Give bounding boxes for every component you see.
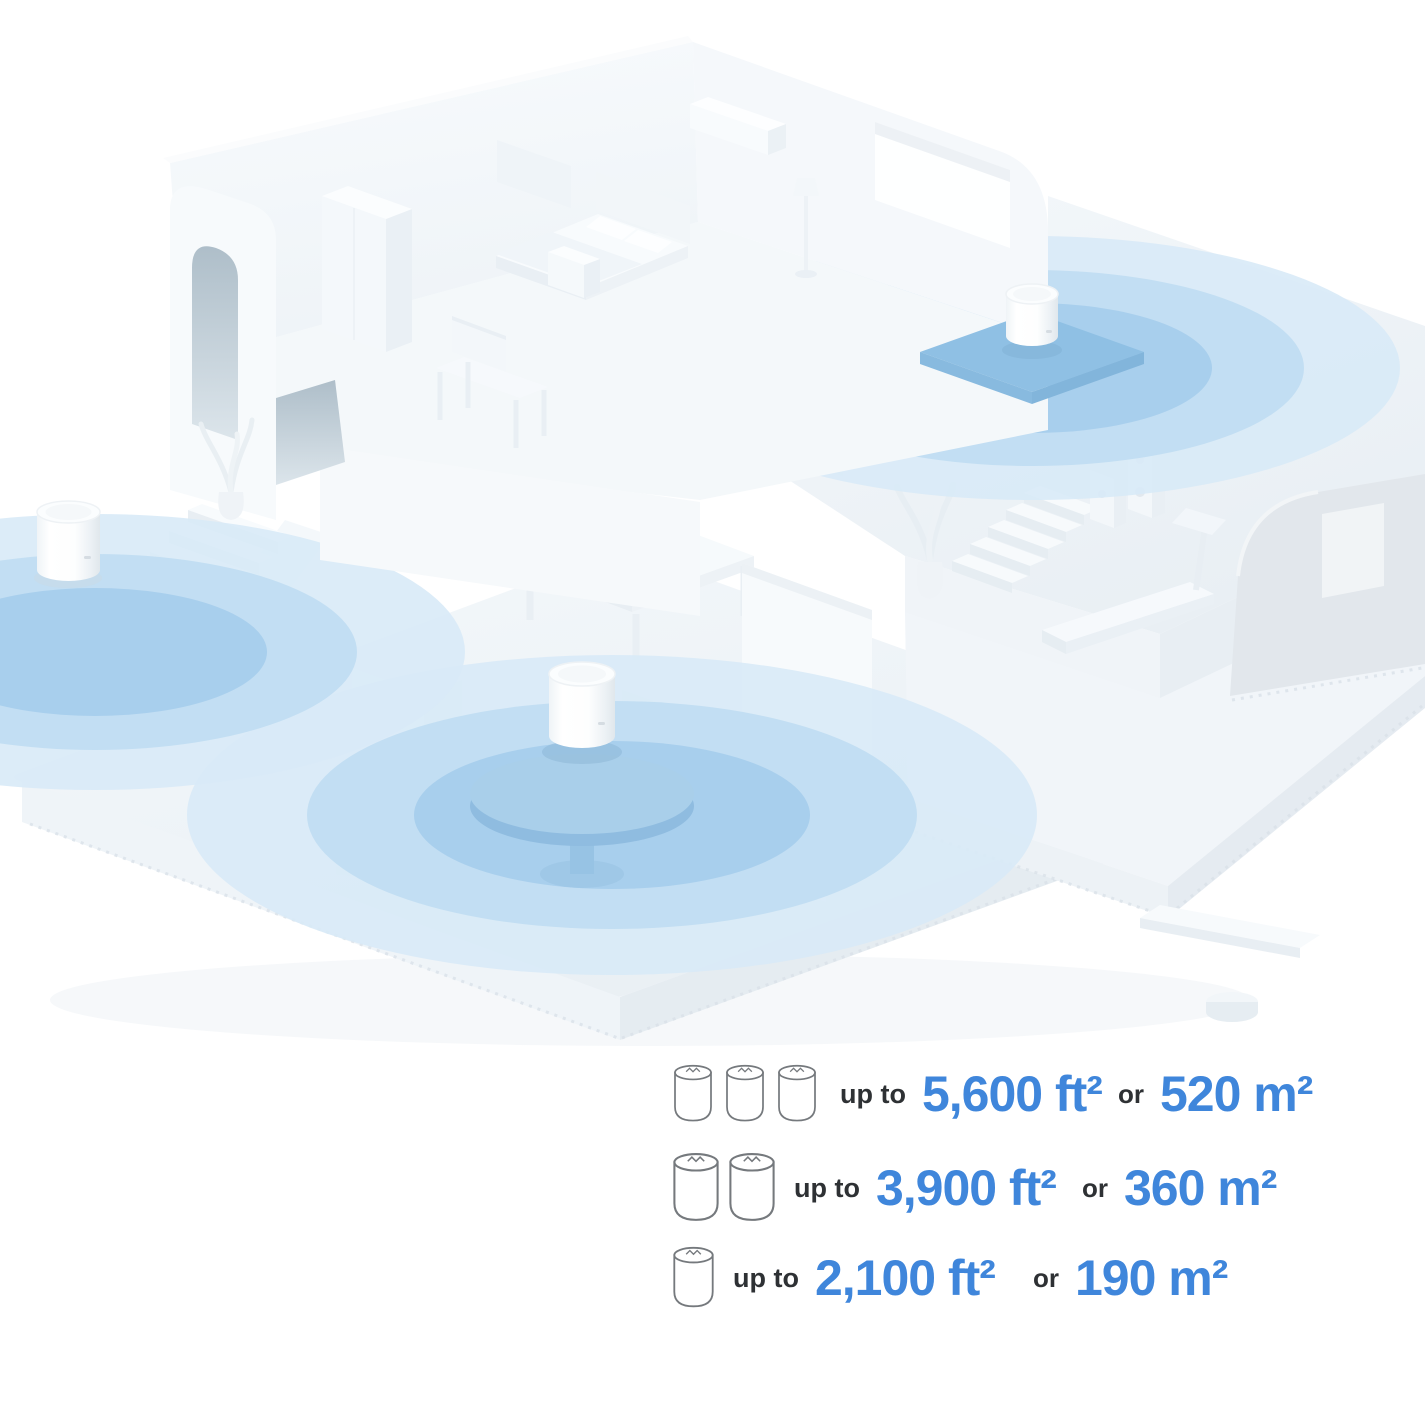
coverage-metric: 360 m² xyxy=(1124,1163,1276,1213)
page: up to 5,600 ft² or 520 m² up to 3,900 ft… xyxy=(0,0,1425,1425)
coverage-prefix: up to xyxy=(840,1081,906,1108)
unit-icons-3pack xyxy=(670,1064,820,1124)
coverage-conjunction: or xyxy=(1118,1081,1144,1107)
coverage-imperial: 5,600 ft² xyxy=(922,1069,1102,1119)
mesh-unit-icon xyxy=(726,1152,778,1224)
coverage-conjunction: or xyxy=(1082,1175,1108,1201)
coverage-row-3pack: up to 5,600 ft² or 520 m² xyxy=(670,1056,1312,1132)
coverage-metric: 520 m² xyxy=(1160,1069,1312,1119)
mesh-unit-icon xyxy=(670,1152,722,1224)
coverage-imperial: 2,100 ft² xyxy=(815,1253,995,1303)
bench xyxy=(1140,905,1320,958)
mesh-unit-icon xyxy=(670,1246,717,1310)
mesh-unit-icon xyxy=(774,1064,820,1124)
mesh-unit-icon xyxy=(722,1064,768,1124)
mesh-unit-left xyxy=(34,501,102,588)
unit-icons-2pack xyxy=(670,1152,778,1224)
unit-icons-1pack xyxy=(670,1246,717,1310)
coverage-prefix: up to xyxy=(733,1265,799,1292)
coverage-row-1pack: up to 2,100 ft² or 190 m² xyxy=(670,1238,1227,1318)
coverage-prefix: up to xyxy=(794,1175,860,1202)
coverage-row-2pack: up to 3,900 ft² or 360 m² xyxy=(670,1146,1276,1230)
mesh-unit-icon xyxy=(670,1064,716,1124)
coverage-legend: up to 5,600 ft² or 520 m² up to 3,900 ft… xyxy=(0,0,1425,385)
coverage-imperial: 3,900 ft² xyxy=(876,1163,1056,1213)
coverage-conjunction: or xyxy=(1033,1265,1059,1291)
coverage-metric: 190 m² xyxy=(1075,1253,1227,1303)
